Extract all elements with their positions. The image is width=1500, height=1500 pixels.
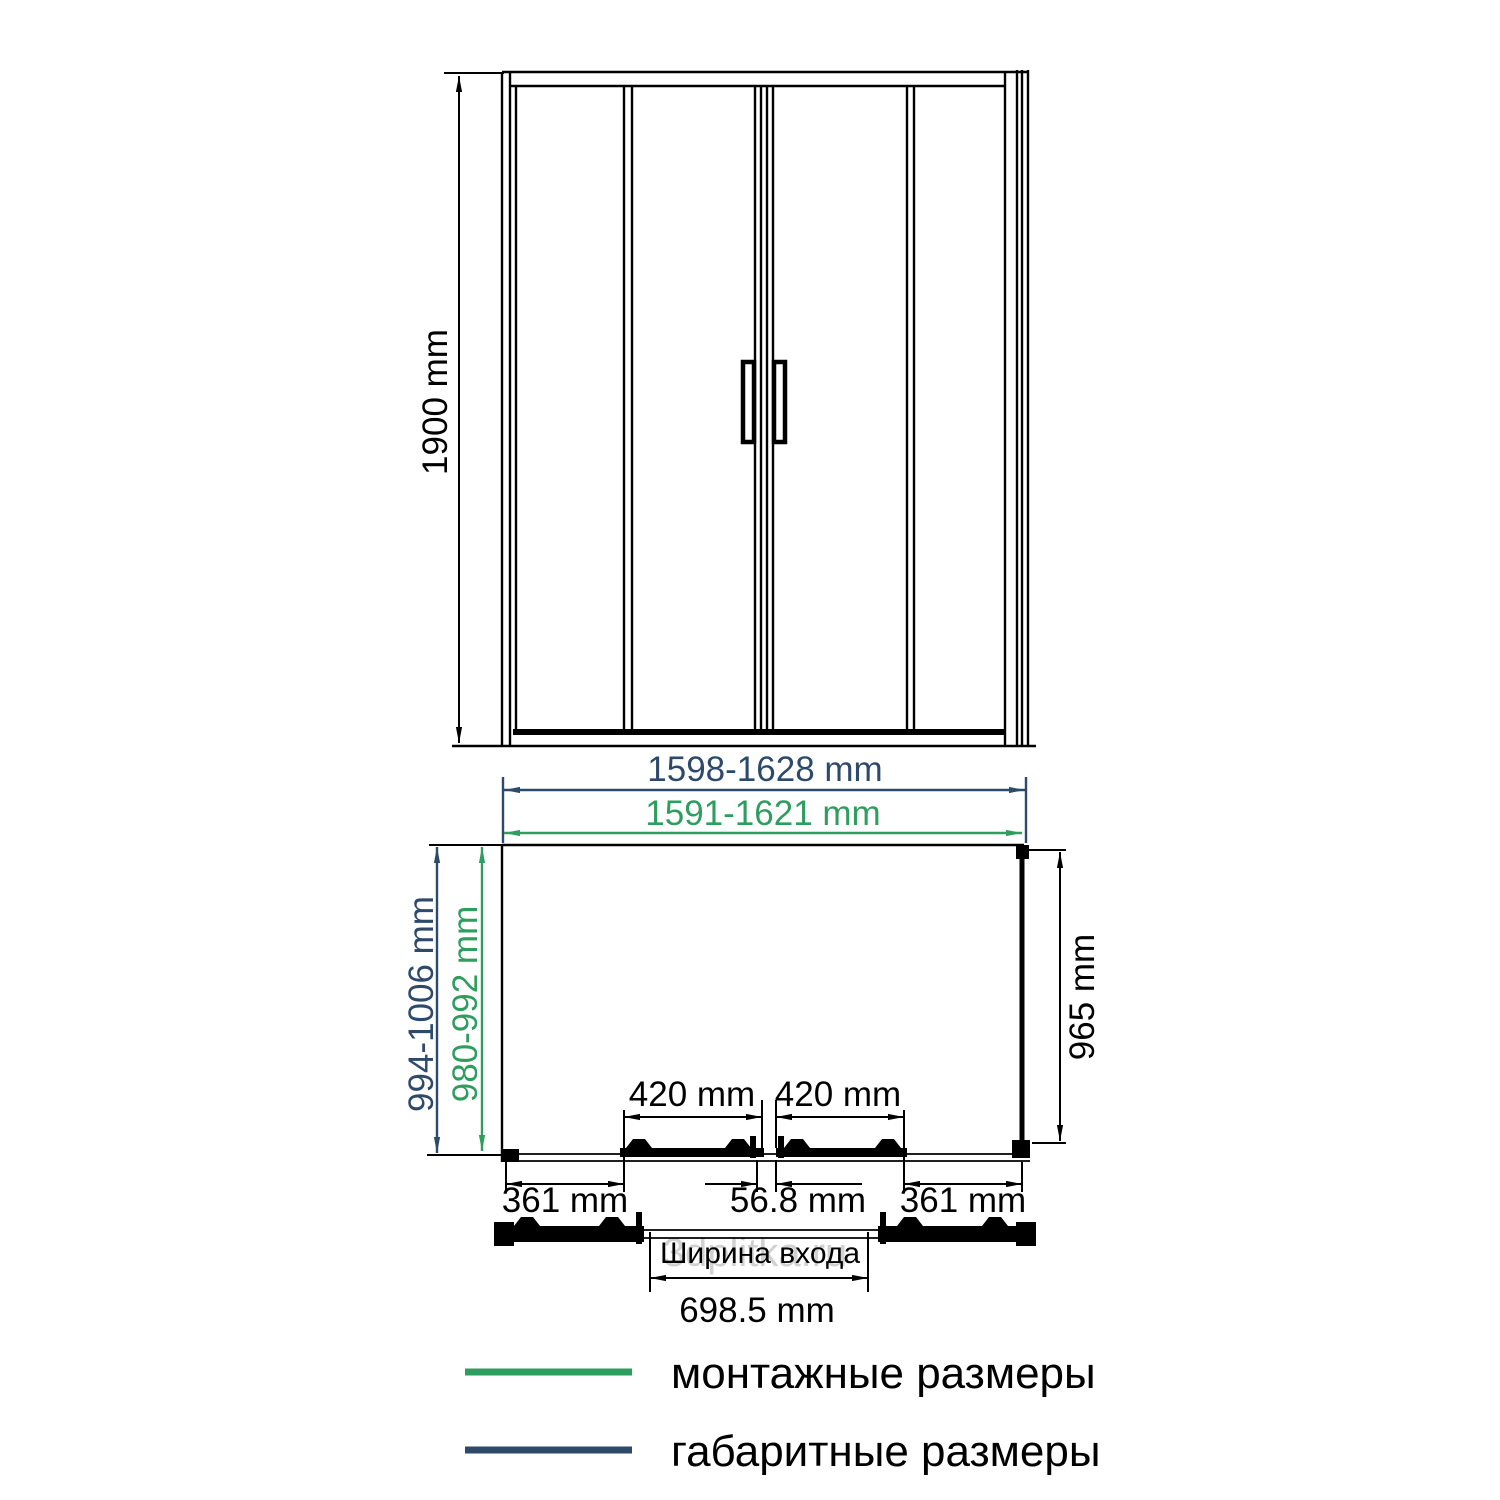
- stack-end-block-right: [1016, 1222, 1036, 1246]
- plan-door-left-bar: [620, 1148, 764, 1157]
- front-height-dim-label: 1900 mm: [416, 329, 455, 475]
- plan-door-right-bar: [776, 1148, 907, 1157]
- overall-depth-label: 994-1006 mm: [402, 896, 441, 1112]
- technical-drawing-canvas: 3dplitka.ru 1900 mm: [0, 0, 1500, 1500]
- roller-4: [875, 1139, 901, 1148]
- entrance-width-label: Ширина входа: [660, 1237, 860, 1270]
- shower-enclosure-drawing: 3dplitka.ru 1900 mm: [0, 0, 1500, 1500]
- center-overlap-label: 56.8 mm: [730, 1181, 866, 1220]
- mounting-width-label: 1591-1621 mm: [645, 794, 880, 833]
- legend-label-overall: габаритные размеры: [671, 1427, 1100, 1476]
- front-view: 1900 mm: [416, 70, 1036, 746]
- roller-2: [725, 1139, 751, 1148]
- door-handle-left: [743, 362, 754, 442]
- roller-3: [784, 1139, 810, 1148]
- roller-1: [626, 1139, 652, 1148]
- side-right-dim-label: 361 mm: [900, 1181, 1026, 1220]
- corner-block-bottom-right: [1012, 1140, 1030, 1158]
- stacked-doors-right: [878, 1226, 1022, 1242]
- side-left-dim-label: 361 mm: [502, 1181, 628, 1220]
- corner-block-bottom-left: [503, 1149, 519, 1162]
- corner-block-top-right: [1016, 845, 1029, 859]
- plan-handle-stub-left: [750, 1136, 756, 1158]
- legend-label-mounting: монтажные размеры: [671, 1349, 1096, 1398]
- overall-width-label: 1598-1628 mm: [647, 750, 882, 789]
- door-left-dim-label: 420 mm: [629, 1075, 755, 1114]
- legend: монтажные размеры габаритные размеры: [465, 1349, 1100, 1476]
- stack-handle-right: [880, 1212, 886, 1244]
- stack-end-block-left: [494, 1222, 514, 1246]
- door-handle-right: [774, 362, 785, 442]
- stack-handle-left: [636, 1212, 642, 1244]
- plan-handle-stub-right: [778, 1136, 784, 1158]
- inner-depth-label: 965 mm: [1063, 934, 1102, 1060]
- plan-view: 1598-1628 mm 1591-1621 mm 994-1006 mm 98…: [402, 750, 1102, 1220]
- door-right-dim-label: 420 mm: [775, 1075, 901, 1114]
- entrance-dim-value: 698.5 mm: [679, 1291, 835, 1330]
- stacked-doors-left: [500, 1226, 644, 1242]
- mounting-depth-label: 980-992 mm: [446, 906, 485, 1102]
